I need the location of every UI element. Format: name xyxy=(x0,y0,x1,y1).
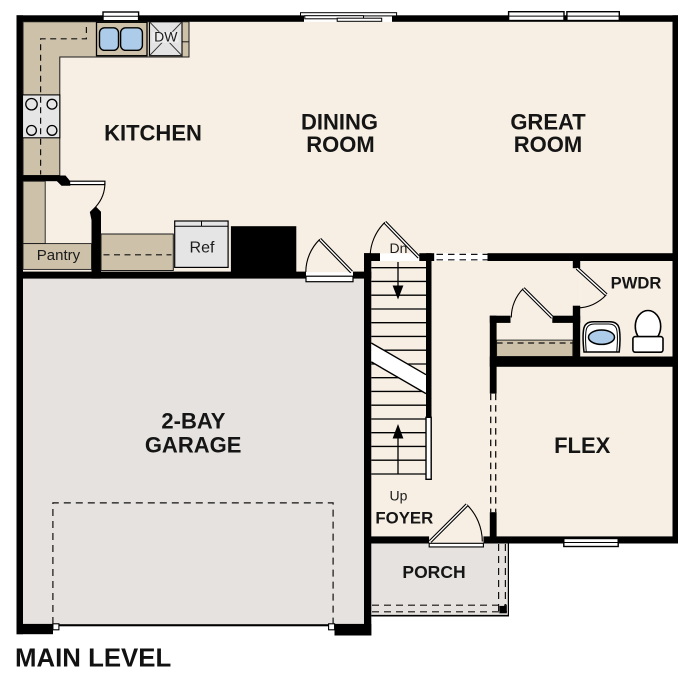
svg-text:PWDR: PWDR xyxy=(611,274,662,293)
svg-text:DW: DW xyxy=(154,29,178,45)
svg-text:ROOM: ROOM xyxy=(514,132,582,157)
svg-text:DINING: DINING xyxy=(301,110,378,135)
svg-text:Up: Up xyxy=(390,488,408,504)
svg-text:MAIN LEVEL: MAIN LEVEL xyxy=(15,644,171,672)
svg-text:PORCH: PORCH xyxy=(402,562,465,582)
svg-text:Dn: Dn xyxy=(390,240,408,256)
svg-text:KITCHEN: KITCHEN xyxy=(104,121,202,146)
svg-text:ROOM: ROOM xyxy=(306,132,374,157)
svg-text:Ref: Ref xyxy=(190,239,215,256)
svg-text:2-BAY: 2-BAY xyxy=(161,408,225,433)
svg-text:GARAGE: GARAGE xyxy=(145,432,242,457)
svg-text:FOYER: FOYER xyxy=(375,508,433,527)
svg-text:GREAT: GREAT xyxy=(510,110,586,135)
svg-text:Pantry: Pantry xyxy=(37,247,81,264)
svg-text:FLEX: FLEX xyxy=(554,433,611,458)
